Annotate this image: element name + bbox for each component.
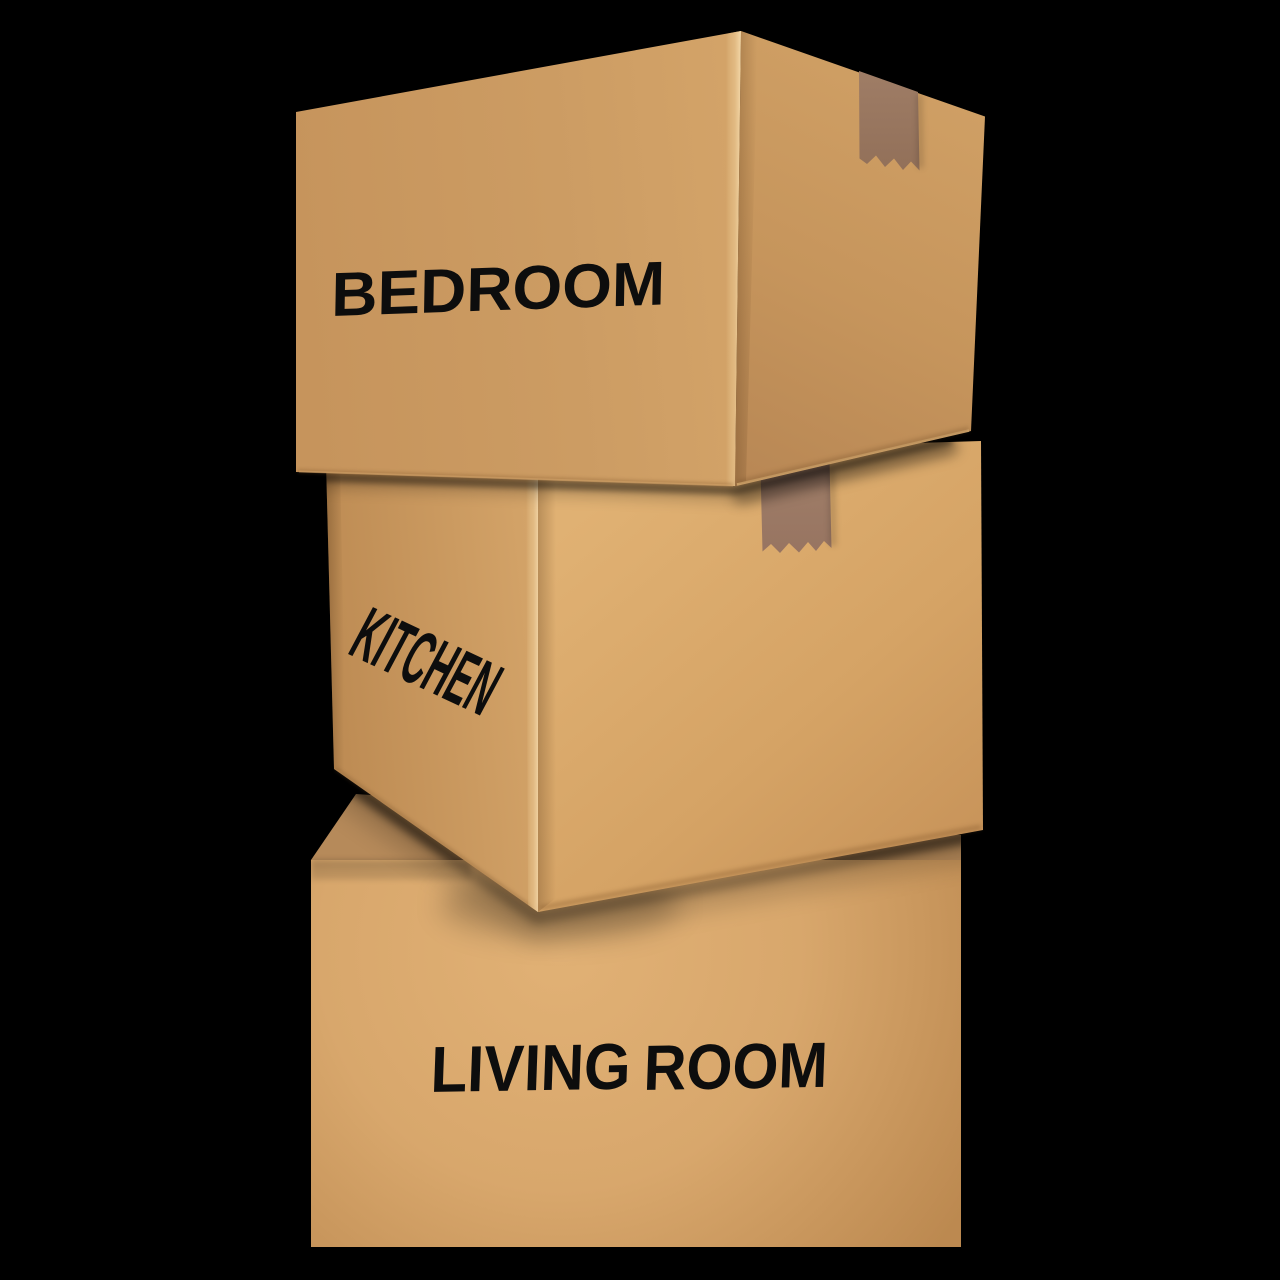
svg-text:ROOM: ROOM [643,1029,829,1104]
svg-text:BEDROOM: BEDROOM [331,249,666,330]
svg-text:LIVING: LIVING [430,1030,633,1106]
